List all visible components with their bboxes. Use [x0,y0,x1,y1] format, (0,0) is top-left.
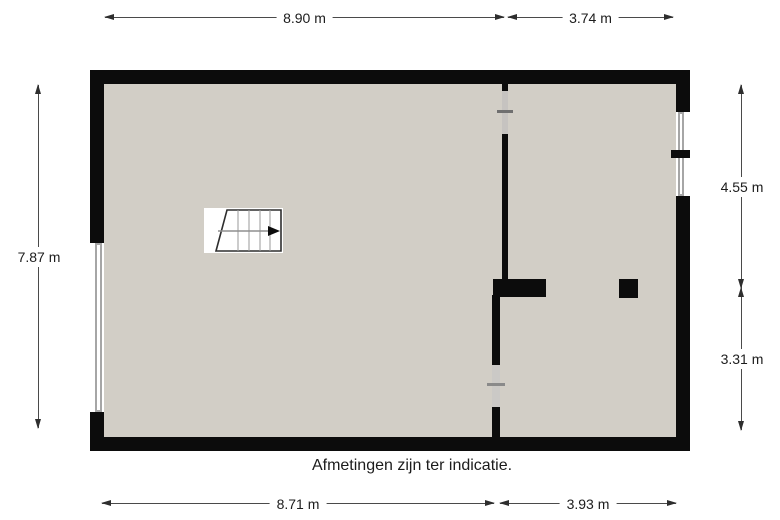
dimension-top-left: 8.90 m [105,17,504,18]
door-lower [492,365,500,407]
caption: Afmetingen zijn ter indicatie. [312,457,512,475]
window-sill [678,194,684,196]
arrow-left-icon [499,500,509,506]
arrow-left-icon [101,500,111,506]
dimension-label: 7.87 m [14,247,65,267]
dimension-label: 3.93 m [560,495,617,513]
window-left [90,243,104,412]
dimension-right-upper: 4.55 m [741,85,742,288]
stairs-icon [204,206,283,253]
interior-wall [492,407,500,438]
arrow-right-icon [664,14,674,20]
dimension-label: 8.90 m [276,9,333,27]
door-upper [502,91,508,134]
floor-area [104,84,676,437]
dimension-label: 4.55 m [717,177,768,197]
dimension-left: 7.87 m [38,85,39,428]
interior-wall [502,134,508,280]
dimension-top-right: 3.74 m [508,17,673,18]
arrow-right-icon [667,500,677,506]
arrow-up-icon [35,84,41,94]
dimension-bottom-right: 3.93 m [500,503,676,504]
interior-wall [492,295,500,365]
door-tick [487,383,505,386]
window-sill [95,410,102,412]
window-sill [95,243,102,245]
interior-wall [502,84,508,91]
dimension-label: 8.71 m [270,495,327,513]
dimension-bottom-left: 8.71 m [102,503,494,504]
arrow-left-icon [104,14,114,20]
arrow-up-icon [738,287,744,297]
exterior-wall [90,70,690,451]
arrow-left-icon [507,14,517,20]
arrow-down-icon [738,421,744,431]
interior-wall-block [493,279,546,297]
column [619,279,638,298]
floor-plan-page: 8.90 m 3.74 m 7.87 m 4.55 m 3.31 m [0,0,780,520]
door-tick [497,110,513,113]
window-pane [95,243,97,412]
arrow-up-icon [738,84,744,94]
arrow-right-icon [495,14,505,20]
arrow-down-icon [35,419,41,429]
arrow-right-icon [485,500,495,506]
dimension-label: 3.74 m [562,9,619,27]
dimension-label: 3.31 m [717,349,768,369]
window-sill [678,112,684,114]
dimension-right-lower: 3.31 m [741,288,742,430]
window-pane [100,243,102,412]
window-divider-wall [671,150,690,158]
